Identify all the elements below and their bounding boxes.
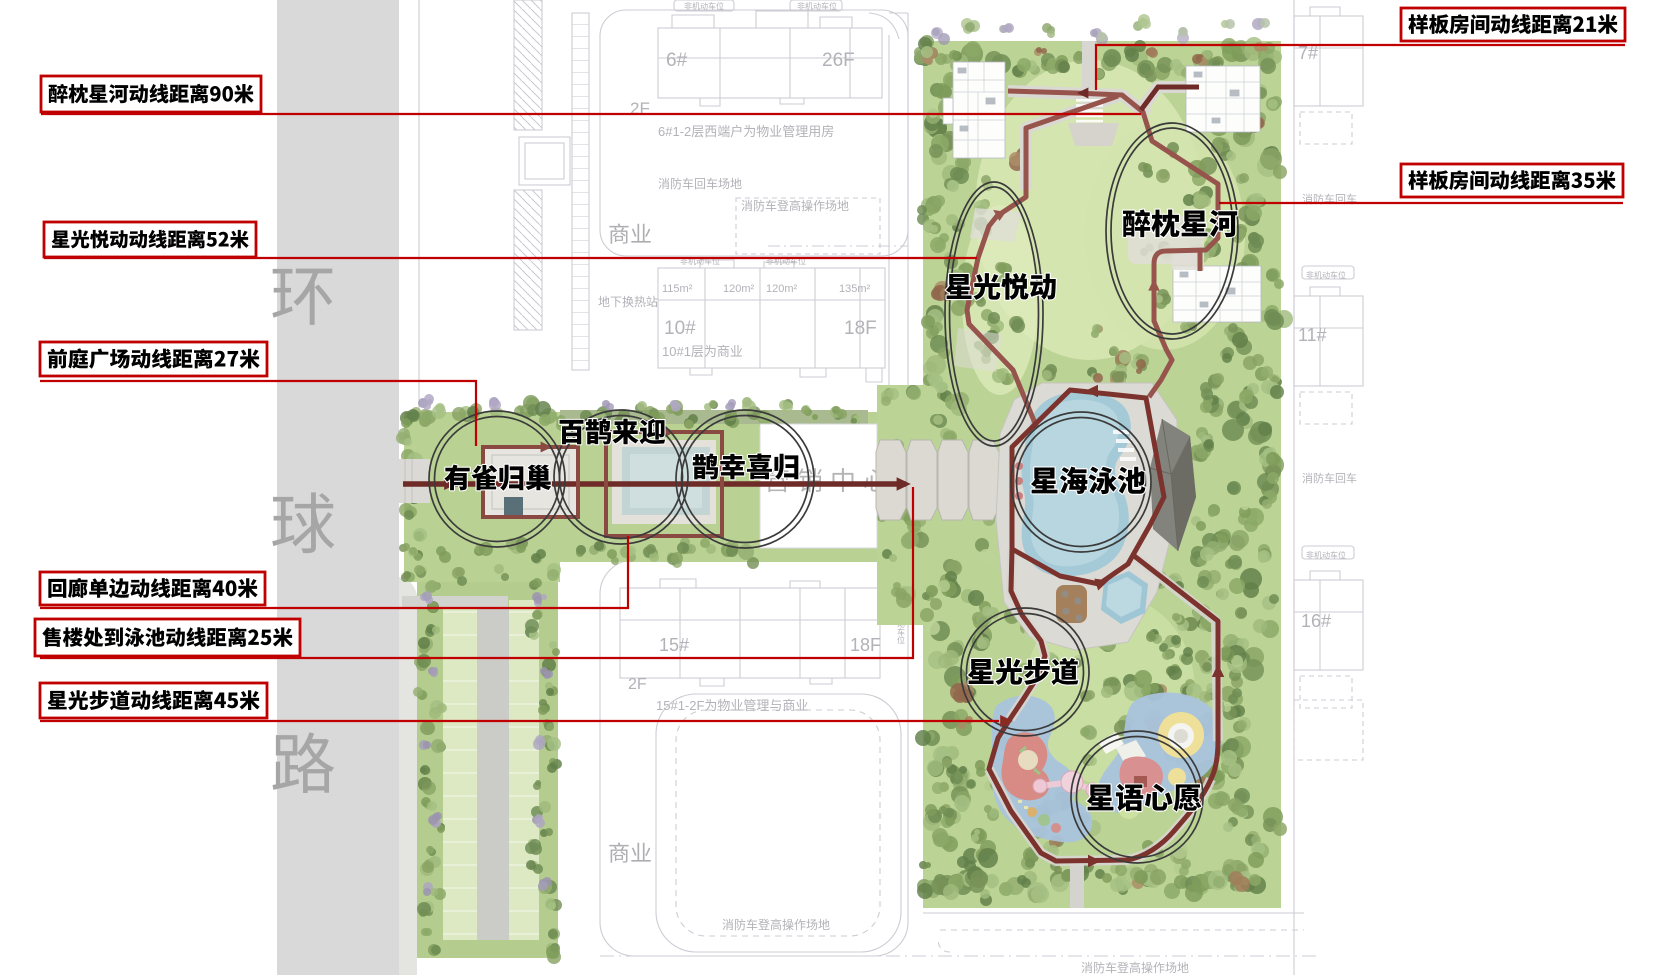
svg-text:非机动车位: 非机动车位 [1306, 270, 1346, 280]
svg-text:11#: 11# [1298, 325, 1327, 345]
svg-text:26F: 26F [822, 50, 855, 71]
svg-text:消防车回车场地: 消防车回车场地 [658, 176, 742, 191]
svg-text:非机动车位: 非机动车位 [1306, 550, 1346, 560]
svg-text:非机动车位: 非机动车位 [797, 1, 837, 11]
svg-text:120m²: 120m² [723, 283, 755, 295]
svg-text:10#1层为商业: 10#1层为商业 [662, 344, 743, 359]
svg-text:135m²: 135m² [839, 283, 871, 295]
svg-text:18F: 18F [850, 635, 881, 655]
svg-text:120m²: 120m² [766, 283, 798, 295]
svg-text:115m²: 115m² [662, 283, 693, 295]
svg-text:6#: 6# [666, 50, 688, 71]
svg-text:消防车回车: 消防车回车 [1302, 471, 1357, 485]
svg-text:消防车登高操作场地: 消防车登高操作场地 [741, 198, 849, 213]
svg-text:消防车登高操作场地: 消防车登高操作场地 [1081, 960, 1189, 975]
svg-text:18F: 18F [844, 318, 877, 339]
svg-text:2F: 2F [630, 99, 650, 118]
svg-text:消防车登高操作场地: 消防车登高操作场地 [722, 917, 830, 932]
svg-text:2F: 2F [628, 676, 647, 693]
svg-text:15#1-2F为物业管理与商业: 15#1-2F为物业管理与商业 [656, 698, 808, 713]
svg-text:15#: 15# [659, 635, 689, 655]
svg-text:非机动车位: 非机动车位 [684, 1, 724, 11]
svg-text:6#1-2层西端户为物业管理用房: 6#1-2层西端户为物业管理用房 [658, 124, 834, 139]
svg-text:地下换热站: 地下换热站 [598, 295, 658, 309]
svg-text:10#: 10# [664, 318, 696, 339]
svg-text:16#: 16# [1301, 611, 1331, 631]
